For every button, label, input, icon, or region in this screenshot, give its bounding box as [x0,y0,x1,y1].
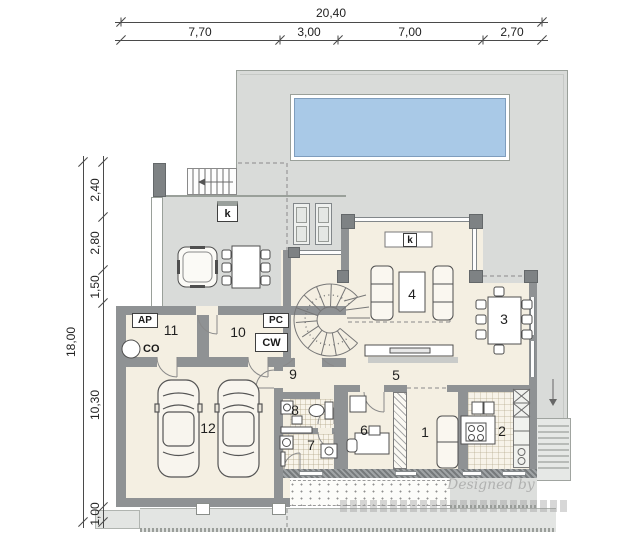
room-number-5: 5 [392,367,400,383]
tag-pc: PC [263,313,289,328]
kitchen-cabinet-details [513,389,530,465]
dim-top-s4: 2,70 [500,25,523,39]
room-number-6: 6 [360,422,368,438]
boiler-icon [122,340,140,358]
tick [338,36,339,45]
tag-k-fireplace: k [403,233,417,247]
room-number-9: 9 [289,366,297,382]
watermark-text: Designed by [447,477,535,493]
tag-k-terrace: k [217,201,238,222]
dim-left-s2: 2,80 [88,231,102,254]
tag-ap: AP [132,313,158,328]
dim-top-total: 20,40 [316,6,346,20]
room-number-3: 3 [500,311,508,327]
dim-line-left-total [83,156,84,528]
dim-left-s5: 1,00 [88,502,102,525]
room-number-8: 8 [291,402,299,418]
tick [280,36,281,45]
bench-seat [437,416,458,468]
dim-top-s2: 3,00 [297,25,320,39]
tag-co: CO [143,343,160,355]
room-number-4: 4 [408,286,416,302]
dim-left-total: 18,00 [64,327,78,357]
dim-top-s1: 7,70 [188,25,211,39]
car [155,380,202,477]
dim-top-s3: 7,00 [398,25,421,39]
tick [542,18,543,27]
watermark-logo [340,500,567,512]
outdoor-dining-set [222,246,270,288]
tick [121,18,122,27]
dim-left-s4: 10,30 [88,390,102,420]
room-number-1: 1 [421,424,429,440]
dim-left-s3: 1,50 [88,275,102,298]
dim-line-left-segments [103,156,104,528]
kitchen-island-stove [461,402,495,444]
sideboard-tv [365,345,458,363]
car [215,380,262,477]
dim-left-s1: 2,40 [88,178,102,201]
room-number-7: 7 [307,437,315,453]
spiral-staircase [294,284,370,356]
dim-line-top-total [115,22,548,23]
room-number-11: 11 [164,322,179,338]
stair-arrow-down [549,399,557,406]
toilet [309,402,333,419]
tag-cw: CW [255,333,288,352]
tick [483,36,484,45]
room-number-10: 10 [230,324,246,340]
room-number-2: 2 [498,423,506,439]
room-number-12: 12 [200,420,216,436]
stair-treads-bottom-right [538,379,569,468]
outdoor-lounge [178,247,217,287]
floor-plan: 1 2 3 4 5 6 7 8 9 10 11 12 AP CO PC CW k… [0,0,638,556]
